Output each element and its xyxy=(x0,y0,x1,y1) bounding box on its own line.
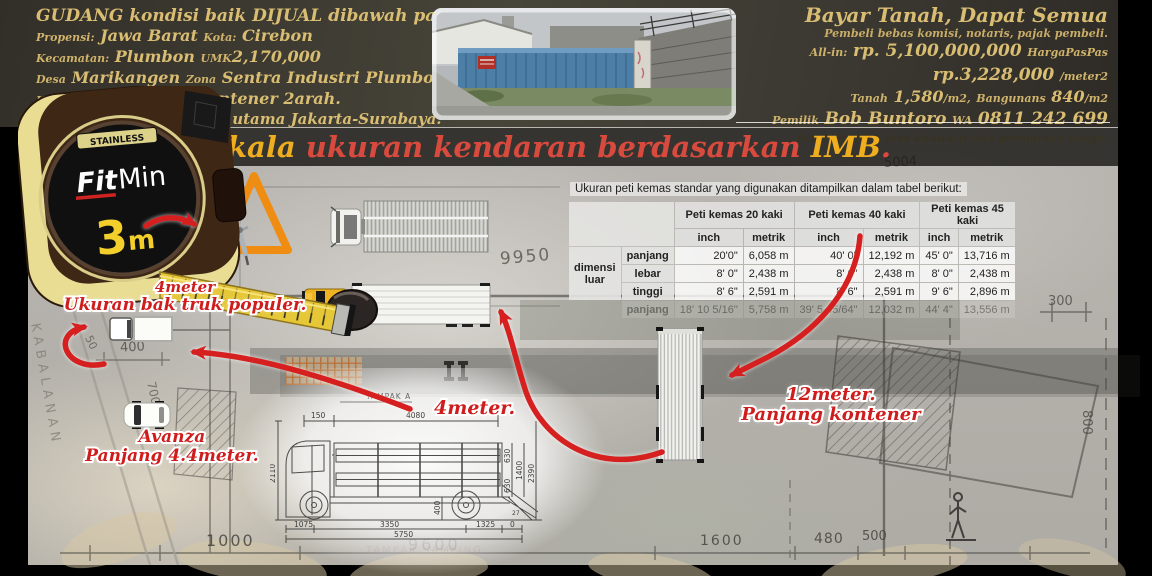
note-avanza: Avanza Panjang 4.4meter. xyxy=(62,428,282,466)
note-kontener: 12meter. Panjang kontener xyxy=(726,385,936,425)
note-avanza-line2: Panjang 4.4meter. xyxy=(62,447,282,466)
arrow-table-to-container xyxy=(732,236,860,375)
note-kontener-line1: 12meter. xyxy=(726,385,936,405)
arrow-drawing-to-pickup xyxy=(194,352,410,409)
note-kontener-line2: Panjang kontener xyxy=(726,405,936,425)
arrow-container-to-truck xyxy=(501,312,662,459)
flyer-canvas: 9950 2200 400 50 700 KABALANAN 300 800 1… xyxy=(0,0,1152,576)
note-bak-line2: Ukuran bak truk populer. xyxy=(60,296,310,315)
note-4meter: 4meter. xyxy=(434,398,515,419)
note-avanza-line1: Avanza xyxy=(62,428,282,447)
arrow-loop-pickup xyxy=(65,327,104,365)
note-bak-truk: 4meter Ukuran bak truk populer. xyxy=(60,279,310,315)
note-bak-line1: 4meter xyxy=(60,279,310,296)
arrow-tape-to-tools xyxy=(146,218,194,226)
